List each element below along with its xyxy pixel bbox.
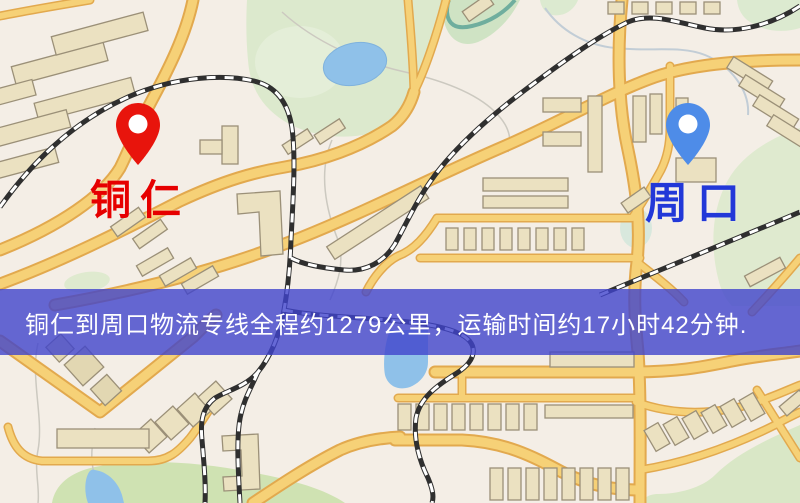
marker-label-zhoukou: 周口 [645,183,749,226]
pin-hole-tongren [129,115,148,134]
map-canvas[interactable] [0,0,800,503]
route-info-banner: 铜仁到周口物流专线全程约1279公里，运输时间约17小时42分钟. [0,289,800,355]
marker-label-tongren: 铜仁 [90,180,190,221]
route-info-text: 铜仁到周口物流专线全程约1279公里，运输时间约17小时42分钟. [0,305,747,340]
map-viewport: 铜仁 周口 铜仁到周口物流专线全程约1279公里，运输时间约17小时42分钟. [0,0,800,503]
pin-hole-zhoukou [679,115,698,134]
